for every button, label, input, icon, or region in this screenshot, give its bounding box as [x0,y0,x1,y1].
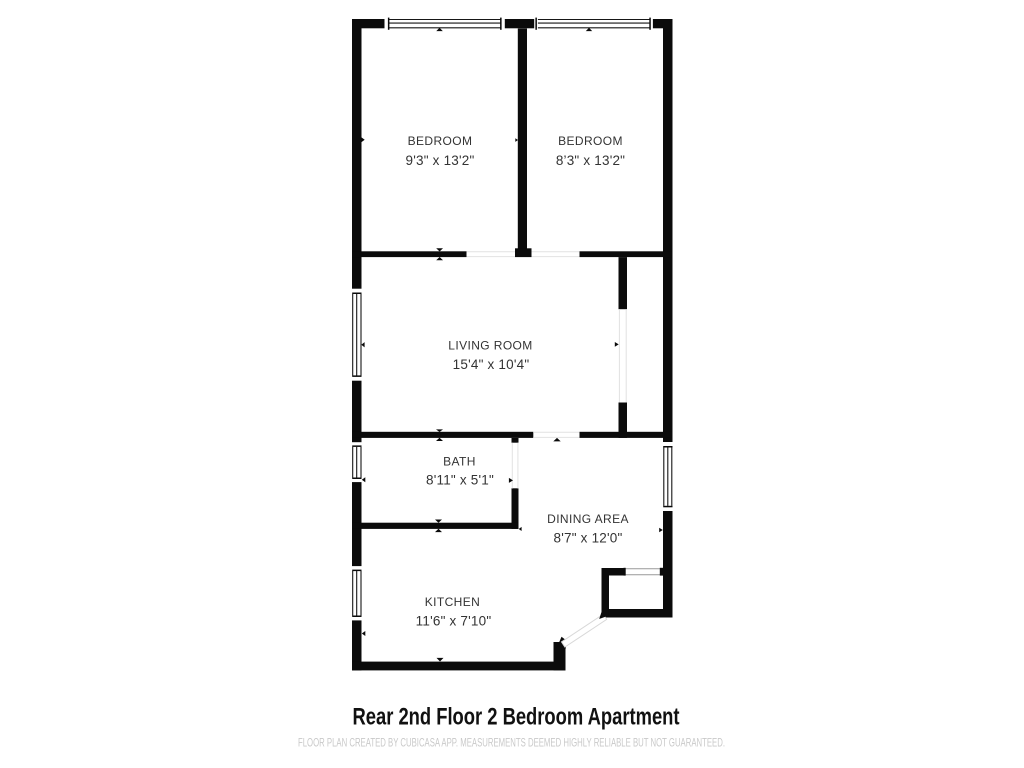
svg-text:11'6" x 7'10": 11'6" x 7'10" [416,613,492,628]
svg-text:9'3" x 13'2": 9'3" x 13'2" [406,153,475,168]
svg-text:8'11" x 5'1": 8'11" x 5'1" [426,473,494,488]
svg-text:BEDROOM: BEDROOM [558,134,623,148]
svg-text:KITCHEN: KITCHEN [425,595,480,609]
svg-text:FLOOR PLAN CREATED BY CUBICASA: FLOOR PLAN CREATED BY CUBICASA APP. MEAS… [298,735,725,749]
svg-text:Rear 2nd Floor 2 Bedroom Apart: Rear 2nd Floor 2 Bedroom Apartment [353,704,680,731]
svg-text:BATH: BATH [443,455,476,469]
svg-text:15'4" x 10'4": 15'4" x 10'4" [453,357,530,372]
svg-text:LIVING ROOM: LIVING ROOM [448,339,532,353]
svg-text:DINING AREA: DINING AREA [547,512,629,526]
svg-text:8'7" x 12'0": 8'7" x 12'0" [554,530,623,545]
svg-text:BEDROOM: BEDROOM [408,134,473,148]
svg-text:8’3" x 13'2": 8’3" x 13'2" [556,153,625,168]
